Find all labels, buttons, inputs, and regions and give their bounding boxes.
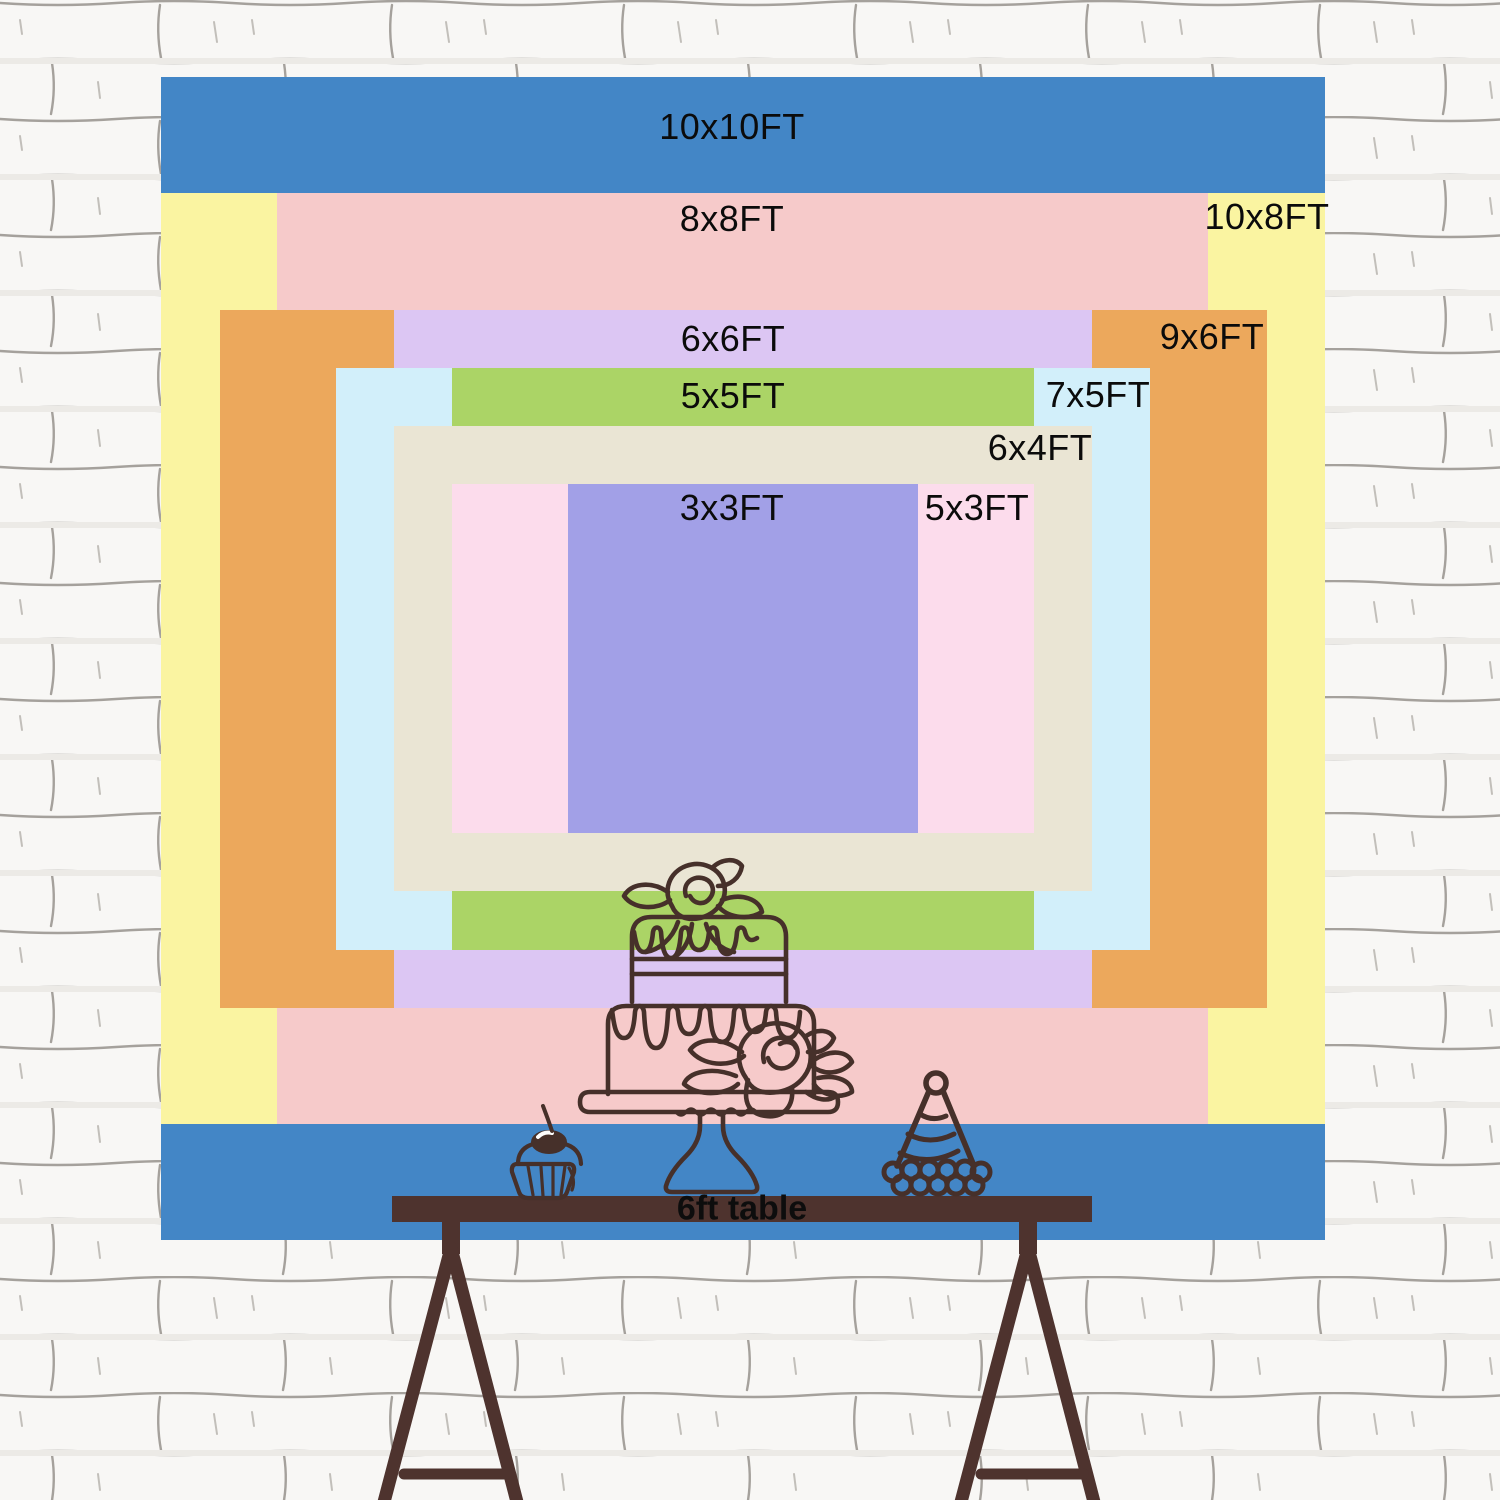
size-label-7x5: 7x5FT: [1046, 377, 1151, 413]
size-label-6x4: 6x4FT: [988, 430, 1093, 466]
size-rect-3x3: [568, 484, 918, 833]
size-label-5x3: 5x3FT: [925, 490, 1030, 526]
size-label-5x5: 5x5FT: [681, 378, 786, 414]
size-chart-page: { "backdrop": { "sizes": [ { "label": "1…: [0, 0, 1500, 1500]
size-label-3x3: 3x3FT: [680, 490, 785, 526]
size-label-10x8: 10x8FT: [1204, 199, 1329, 235]
size-label-10x10: 10x10FT: [659, 109, 805, 145]
table-size-label: 6ft table: [677, 1190, 807, 1229]
size-label-8x8: 8x8FT: [680, 201, 785, 237]
size-label-9x6: 9x6FT: [1160, 319, 1265, 355]
size-label-6x6: 6x6FT: [681, 321, 786, 357]
backdrop-size-chart: 10x10FT 10x8FT 8x8FT 9x6FT 6x6FT 7x5FT 5…: [161, 77, 1325, 1240]
